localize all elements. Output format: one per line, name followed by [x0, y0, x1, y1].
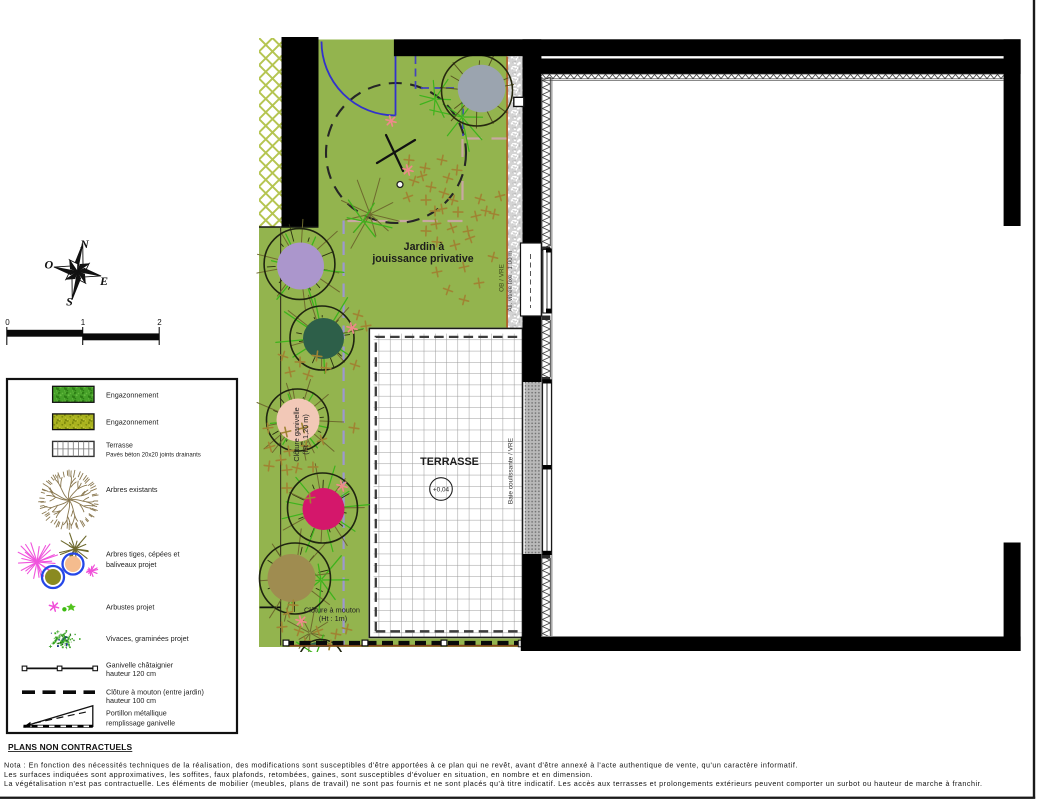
svg-text:N: N	[79, 237, 90, 251]
svg-text:Arbres tiges, cépées et: Arbres tiges, cépées et	[106, 550, 180, 559]
svg-text:La végétalisation n'est pas co: La végétalisation n'est pas contractuell…	[4, 779, 983, 788]
svg-text:jouissance privative: jouissance privative	[371, 253, 473, 265]
svg-text:hauteur 100 cm: hauteur 100 cm	[106, 696, 156, 705]
svg-text:PLANS NON CONTRACTUELS: PLANS NON CONTRACTUELS	[8, 742, 133, 752]
svg-text:OB / VRE: OB / VRE	[499, 264, 506, 292]
svg-text:Nota : En fonction des nécessi: Nota : En fonction des nécessités techni…	[4, 761, 798, 770]
svg-text:2: 2	[157, 318, 162, 327]
svg-text:Vivaces, graminées projet: Vivaces, graminées projet	[106, 634, 189, 643]
svg-text:(Ht : 1,20 m): (Ht : 1,20 m)	[301, 414, 310, 455]
svg-text:remplissage ganivelle: remplissage ganivelle	[106, 719, 175, 728]
svg-text:Engazonnement: Engazonnement	[106, 417, 158, 426]
svg-text:Pavés béton 20x20 joints drain: Pavés béton 20x20 joints drainants	[106, 452, 201, 459]
svg-text:hauteur 120 cm: hauteur 120 cm	[106, 669, 156, 678]
svg-text:Arbustes projet: Arbustes projet	[106, 602, 154, 611]
svg-text:O: O	[45, 258, 54, 272]
svg-text:Clôture ganivelle: Clôture ganivelle	[292, 407, 301, 461]
svg-text:baliveaux projet: baliveaux projet	[106, 560, 156, 569]
svg-text:Baie coulissante / VRE: Baie coulissante / VRE	[508, 437, 515, 504]
svg-text:S: S	[66, 295, 73, 309]
svg-text:Terrasse: Terrasse	[106, 442, 133, 449]
svg-text:E: E	[99, 274, 108, 288]
svg-text:1: 1	[81, 318, 86, 327]
svg-text:(Ht : 1m): (Ht : 1m)	[319, 614, 347, 623]
svg-text:Les surfaces indiquées sont ap: Les surfaces indiquées sont approximativ…	[4, 770, 593, 779]
svg-text:All. vitrée fixe : 1,00 m: All. vitrée fixe : 1,00 m	[507, 251, 514, 312]
svg-text:+0,04: +0,04	[433, 486, 450, 493]
svg-text:Portillon métallique: Portillon métallique	[106, 708, 167, 717]
svg-text:0: 0	[5, 318, 10, 327]
svg-text:Arbres existants: Arbres existants	[106, 485, 158, 494]
svg-text:Jardin à: Jardin à	[404, 241, 445, 253]
svg-text:TERRASSE: TERRASSE	[420, 456, 479, 468]
svg-text:Engazonnement: Engazonnement	[106, 390, 158, 399]
